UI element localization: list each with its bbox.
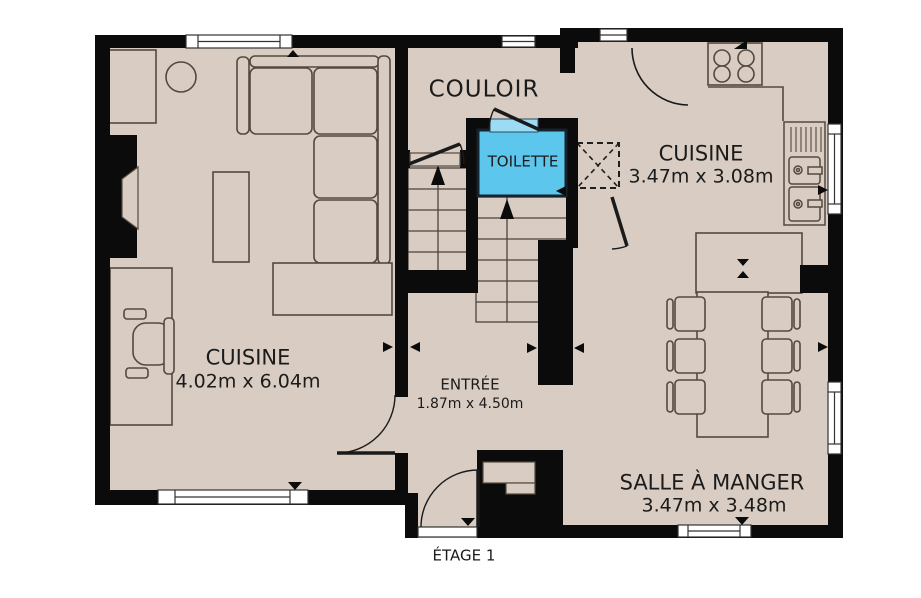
wall-right: [828, 28, 843, 538]
sofa-seat: [250, 68, 312, 134]
sofa-back: [250, 56, 379, 67]
window-kitchen-top: [600, 29, 627, 41]
dining-chair: [675, 297, 705, 331]
chair-back: [794, 382, 800, 412]
window-living-top: [186, 35, 292, 48]
window-kitchen-right: [828, 124, 841, 214]
chair-back: [794, 341, 800, 371]
wall-vestibule-bottom: [405, 527, 418, 538]
round-table: [166, 62, 196, 92]
coffee-table: [213, 172, 249, 262]
chair-armrest: [124, 309, 146, 319]
wall-left: [95, 35, 110, 505]
chair-back: [164, 318, 174, 374]
wall-stair-door: [395, 150, 410, 168]
window-living-bottom: [158, 490, 308, 504]
faucet: [808, 200, 822, 207]
chair-back: [667, 341, 673, 371]
hallway-label: COULOIR: [429, 79, 540, 102]
wall-kitchen-stub: [560, 28, 575, 73]
chaise: [273, 263, 392, 315]
left-staircase: [408, 165, 468, 272]
toilet-label: TOILETTE: [488, 155, 559, 170]
dining-label: SALLE À MANGER: [620, 473, 805, 494]
front-door-sill: [418, 527, 477, 537]
wall-column: [538, 240, 573, 385]
wall-divider-upper: [395, 35, 408, 397]
chair-back: [667, 382, 673, 412]
dining-chair: [762, 380, 792, 414]
window-dining-right: [828, 382, 841, 454]
chair-armrest: [126, 368, 148, 378]
entry-label: ENTRÉE: [440, 378, 499, 393]
dining-chair: [762, 339, 792, 373]
window-hall-top: [502, 36, 535, 47]
dining-dimensions: 3.47m x 3.48m: [642, 497, 787, 516]
outdoor-step: [483, 462, 535, 483]
wall-under-stairs: [403, 270, 478, 293]
drainboard: [791, 127, 821, 152]
chair-back: [794, 299, 800, 329]
living-label: CUISINE: [206, 348, 291, 369]
faucet: [808, 167, 822, 174]
sofa-back: [378, 56, 390, 264]
floor-plan: COULOIR TOILETTE CUISINE 3.47m x 3.08m C…: [0, 0, 921, 598]
sofa-armrest: [237, 57, 249, 134]
entry-dimensions: 1.87m x 4.50m: [417, 397, 524, 411]
wall-toilet-right: [566, 118, 578, 248]
wall-toilet-left: [466, 118, 478, 293]
chair-back: [667, 299, 673, 329]
dining-chair: [762, 297, 792, 331]
kitchen-dimensions: 3.47m x 3.08m: [629, 168, 774, 187]
sofa-seat: [314, 136, 377, 198]
corner-cabinet: [108, 50, 156, 123]
outdoor-step: [506, 483, 535, 494]
dining-table: [697, 292, 768, 437]
dining-chair: [675, 380, 705, 414]
wall-peninsula-stub: [800, 265, 828, 293]
floor-title: ÉTAGE 1: [433, 549, 496, 564]
dining-chair: [675, 339, 705, 373]
sofa-seat: [314, 200, 377, 263]
kitchen-sink: [784, 122, 825, 225]
stove: [708, 43, 762, 85]
kitchen-label: CUISINE: [659, 144, 744, 165]
counter-peninsula: [696, 233, 802, 293]
sofa-seat: [314, 68, 377, 134]
window-dining-bottom: [678, 525, 751, 537]
living-dimensions: 4.02m x 6.04m: [176, 373, 321, 392]
